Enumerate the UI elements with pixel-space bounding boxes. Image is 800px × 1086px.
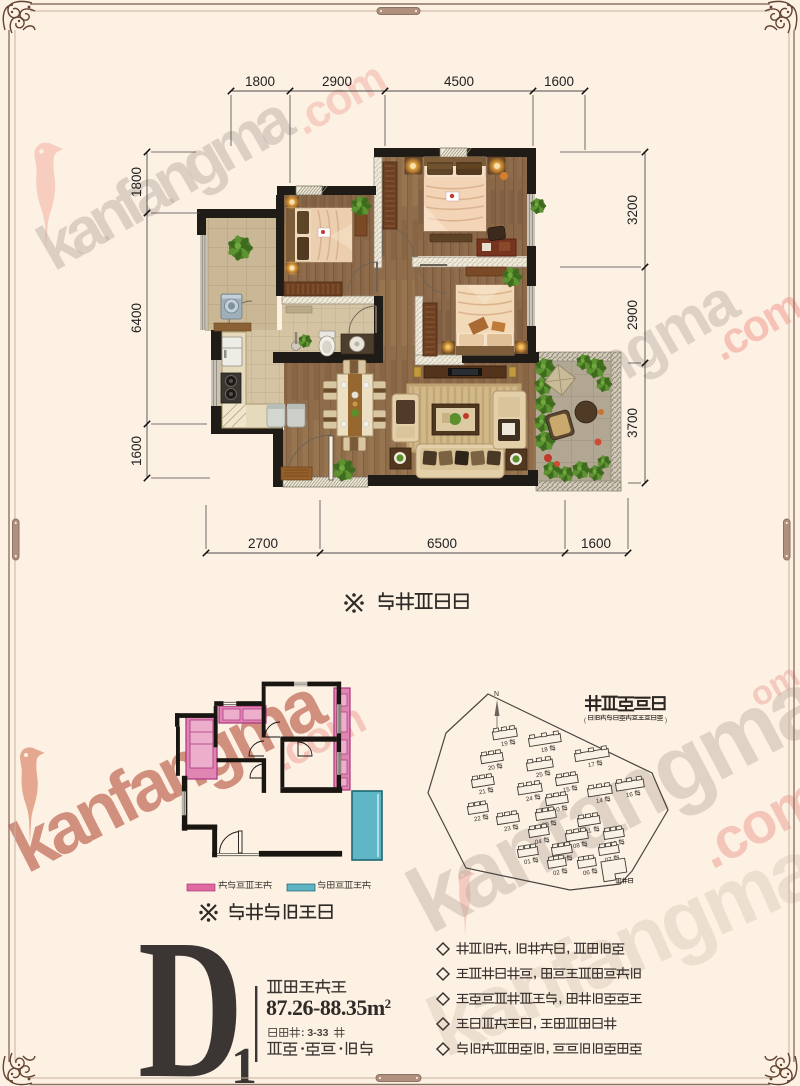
svg-text:,: , xyxy=(533,1017,536,1031)
svg-text:1800: 1800 xyxy=(245,74,275,89)
svg-text:1600: 1600 xyxy=(581,536,611,551)
svg-text:4500: 4500 xyxy=(444,74,474,89)
svg-text:2900: 2900 xyxy=(322,74,352,89)
svg-text:1800: 1800 xyxy=(129,167,144,197)
svg-text:25: 25 xyxy=(535,771,543,779)
svg-text:,: , xyxy=(508,942,511,956)
svg-text:,: , xyxy=(533,967,536,981)
svg-text:2900: 2900 xyxy=(625,300,640,330)
svg-text:6400: 6400 xyxy=(129,303,144,333)
svg-text:87.26-88.35m2: 87.26-88.35m2 xyxy=(266,995,391,1020)
svg-text:3700: 3700 xyxy=(625,408,640,438)
svg-text:): ) xyxy=(665,718,667,724)
svg-text:,: , xyxy=(546,1042,549,1056)
svg-text:.com: .com xyxy=(284,52,394,145)
svg-text:: 3-33: : 3-33 xyxy=(301,1027,329,1039)
svg-text:N: N xyxy=(494,691,499,698)
svg-text:19: 19 xyxy=(500,740,508,748)
svg-text:6500: 6500 xyxy=(427,536,457,551)
svg-text:,: , xyxy=(559,992,562,1006)
svg-text:1600: 1600 xyxy=(544,74,574,89)
svg-text:(: ( xyxy=(584,718,586,724)
svg-text:18: 18 xyxy=(540,746,548,754)
svg-text:21: 21 xyxy=(478,788,486,796)
svg-text:1600: 1600 xyxy=(129,436,144,466)
svg-text:3200: 3200 xyxy=(625,195,640,225)
svg-text:,: , xyxy=(567,942,570,956)
svg-text:D: D xyxy=(138,898,243,1086)
svg-text:2700: 2700 xyxy=(248,536,278,551)
svg-text:20: 20 xyxy=(487,764,495,772)
svg-text:1: 1 xyxy=(231,1038,257,1086)
